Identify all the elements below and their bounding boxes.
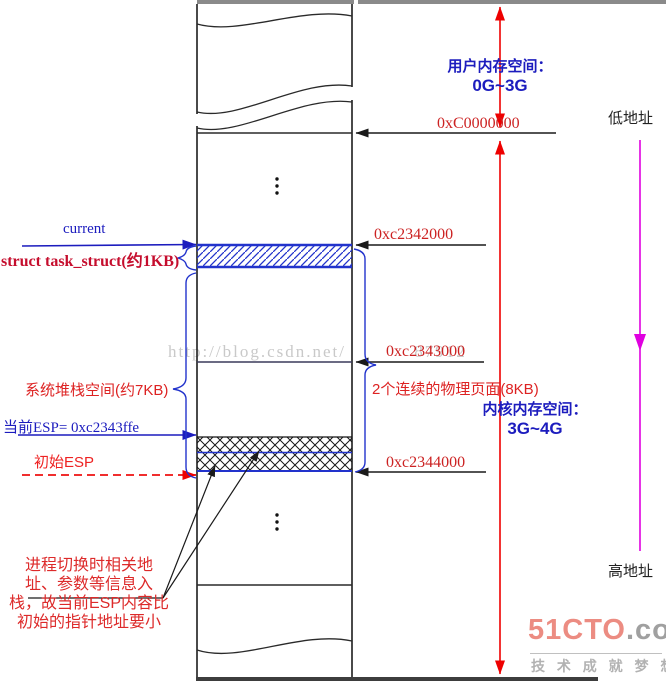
addr-0xC0000000: 0xC0000000 (437, 115, 520, 133)
logo-suffix: .com (626, 614, 666, 646)
logo-main: 51CTO (528, 614, 626, 646)
current-label: current (63, 221, 105, 238)
address-direction-arrow (634, 140, 646, 551)
task-struct-brace (178, 246, 196, 270)
note-line: 进程切换时相关地 (0, 556, 178, 575)
break-waves (197, 14, 352, 654)
note-line: 初始的指针地址要小 (0, 613, 178, 632)
phys-pages-brace (354, 249, 376, 472)
task-struct-label: struct task_struct(约1KB) (1, 247, 179, 271)
addr-0xc2344000: 0xc2344000 (386, 454, 465, 472)
memory-layout-diagram: http://blog.csdn.net/ 87912 (0, 0, 666, 682)
task-struct-band (197, 245, 352, 267)
kernel-space-name: 内核内存空间： (465, 398, 605, 419)
logo-slogan: 技 术 成 就 梦 想 (531, 656, 666, 676)
stack-space-brace (173, 273, 196, 478)
note-line: 址、参数等信息入 (0, 575, 178, 594)
addr-0xc2342000: 0xc2342000 (374, 226, 453, 244)
stack-frames-band (197, 437, 352, 471)
current-pointer-arrow (22, 245, 196, 247)
current-esp-label: 当前ESP= 0xc2343ffe (3, 416, 139, 437)
user-space-label: 用户内存空间： 0G~3G (430, 55, 570, 96)
initial-esp-label: 初始ESP (34, 451, 94, 472)
user-space-range: 0G~3G (430, 76, 570, 96)
process-switch-note: 进程切换时相关地 址、参数等信息入 栈，故当前ESP内容比 初始的指针地址要小 (0, 556, 178, 632)
page-edge-bars (196, 0, 666, 681)
user-space-name: 用户内存空间： (430, 55, 570, 76)
phys-pages-label: 2个连续的物理页面(8KB) (372, 378, 539, 399)
ellipsis-dots (275, 177, 278, 530)
51cto-logo: 51CTO.com (528, 614, 666, 647)
note-line: 栈，故当前ESP内容比 (0, 594, 178, 613)
high-address-label: 高地址 (608, 560, 653, 581)
low-address-label: 低地址 (608, 107, 653, 128)
kernel-space-label: 内核内存空间： 3G~4G (465, 398, 605, 439)
logo-divider (530, 653, 662, 654)
memory-column-outline (197, 4, 352, 677)
stack-space-label: 系统堆栈空间(约7KB) (25, 379, 168, 400)
addr-0xc2343000: 0xc2343000 (386, 343, 465, 361)
kernel-space-range: 3G~4G (465, 419, 605, 439)
